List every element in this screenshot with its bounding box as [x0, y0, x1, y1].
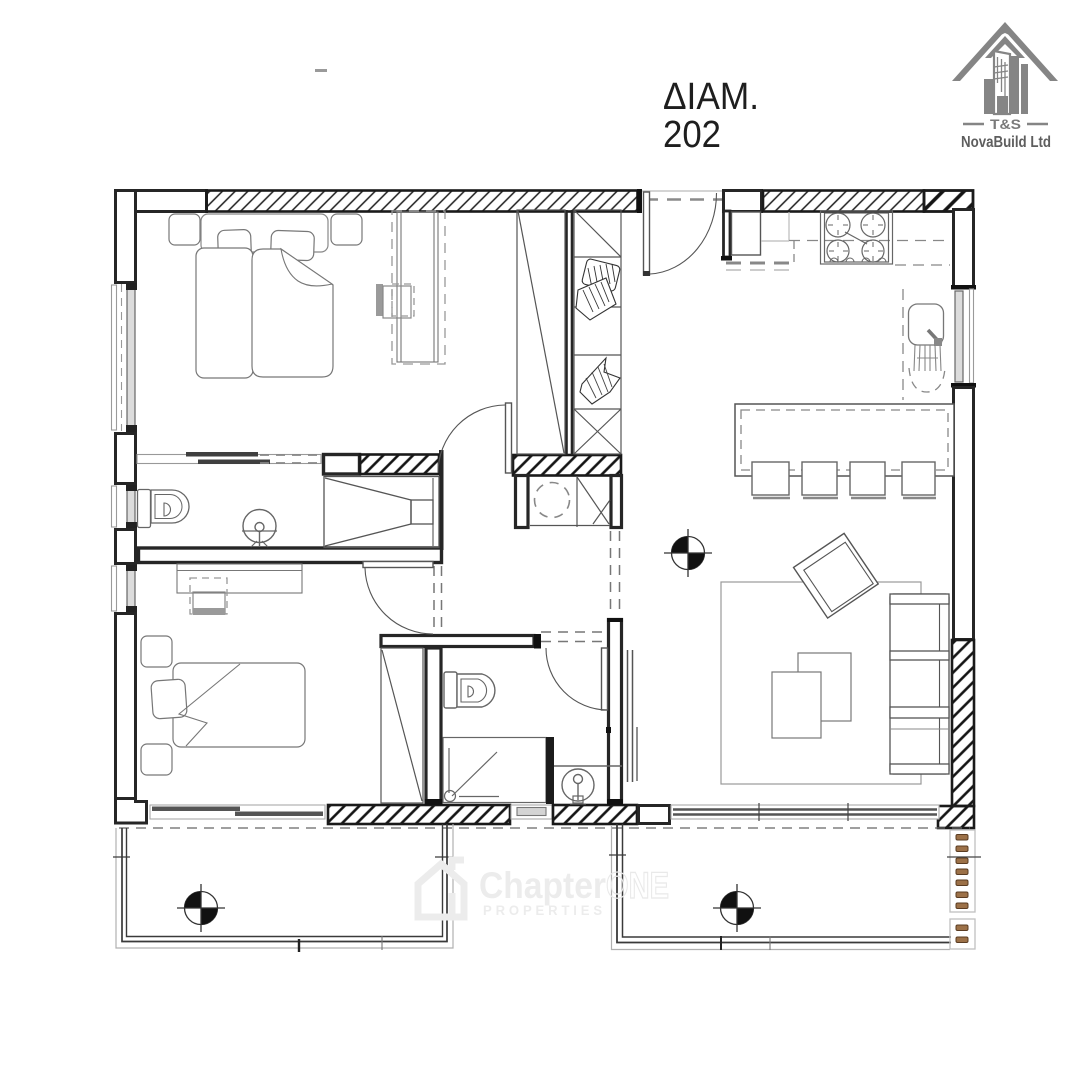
svg-text:ONE: ONE	[606, 865, 669, 906]
svg-text:PROPERTIES: PROPERTIES	[483, 903, 606, 918]
svg-text:Chapter: Chapter	[479, 865, 606, 906]
svg-text:ΔΙΑΜ.: ΔΙΑΜ.	[663, 76, 759, 118]
svg-text:T&S: T&S	[990, 117, 1021, 132]
svg-text:NovaBuild Ltd: NovaBuild Ltd	[961, 134, 1051, 151]
svg-text:202: 202	[663, 114, 721, 156]
